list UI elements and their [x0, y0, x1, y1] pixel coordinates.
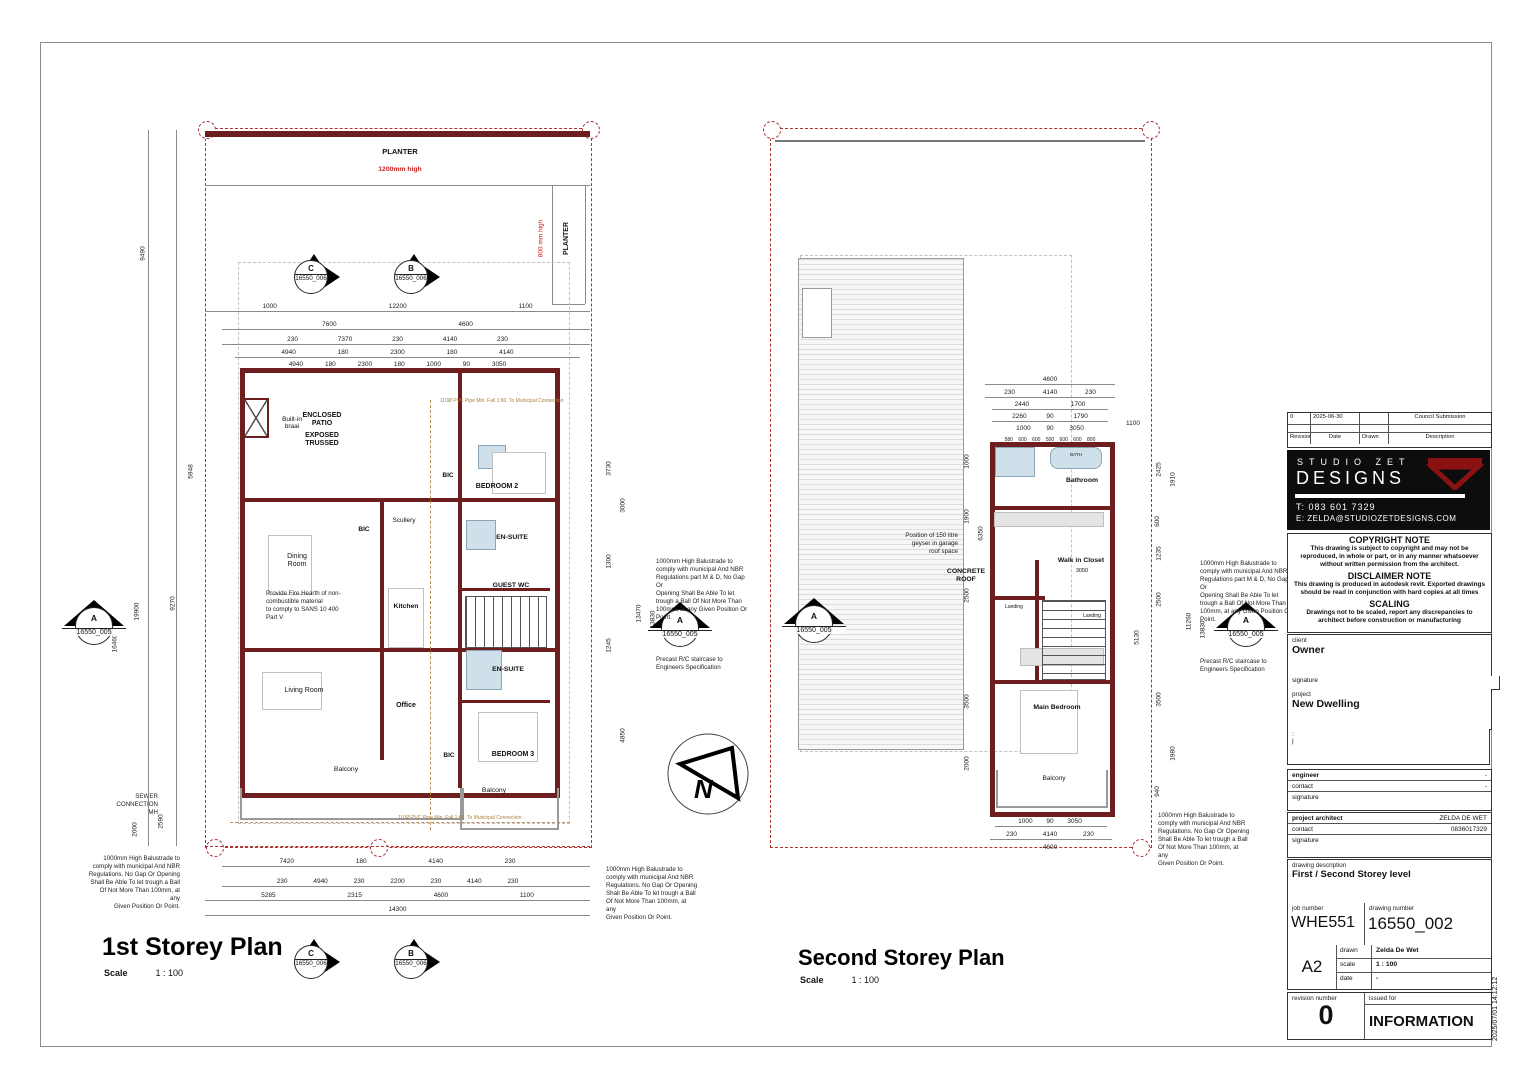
balustrade-note-bottommid: 1000mm High Balustrade to comply with mu… [606, 866, 698, 922]
address-line1: : [1292, 731, 1485, 738]
notes-box: COPYRIGHT NOTE This drawing is subject t… [1287, 533, 1492, 633]
dimension: 2000 [964, 756, 971, 770]
dimension-line [222, 866, 590, 867]
room-label-living: Living Room [274, 687, 334, 695]
dimension: 4850 [620, 728, 627, 742]
architect-value: ZELDA DE WET [1439, 815, 1487, 822]
pvc-pipe-note: 110Ø PVC Pipe Min. Fall 1:60. To Municip… [440, 398, 564, 405]
section-marker-a-left: A 16550_005 [62, 600, 126, 646]
dimension: 2425 [1156, 462, 1163, 476]
room-label-scullery: Scullery [384, 517, 424, 524]
dimension: 3000 [620, 498, 627, 512]
dimension: 19900 [134, 602, 141, 620]
job-label: job number [1288, 903, 1364, 912]
dimension-row: 230 7370 230 4140 230 [205, 336, 590, 343]
dimension-row: 2440 1700 [985, 401, 1115, 408]
drawn-label: drawn [1337, 945, 1371, 959]
dimension: 1980 [1170, 746, 1177, 760]
dimension-row: 2260 90 1790 [985, 413, 1115, 420]
balustrade-note-bottomleft: 1000mm High Balustrade to comply with mu… [88, 855, 180, 911]
bath-fixture [1050, 447, 1102, 469]
room-label-guestwc: GUEST WC [486, 582, 536, 590]
client-signature: signature [1287, 676, 1500, 690]
pvc-pipe-line [230, 822, 570, 823]
dimension-line [205, 311, 590, 312]
logo-tel: T: 083 601 7329 [1296, 502, 1376, 512]
dimension-row: 14300 [205, 906, 590, 913]
room-label-bathroom: Bathroom [1052, 477, 1112, 485]
section-ref: 16550_006 [295, 275, 327, 282]
section-ref: 16550_006 [395, 275, 427, 282]
job-number-box: job number WHE551 drawing number 16550_0… [1287, 903, 1492, 946]
dimension: 3500 [1156, 692, 1163, 706]
engineer-label: engineer [1292, 772, 1319, 779]
dimension: 2000 [132, 822, 139, 836]
landing-label: Landing [998, 605, 1030, 611]
dimension-row: 7600 4600 [205, 321, 590, 328]
dimension-line [985, 397, 1115, 398]
room-label-bic: BIC [436, 472, 460, 479]
project-label: project [1288, 689, 1491, 698]
scale-value: 1 : 100 [156, 968, 184, 978]
svg-text:N: N [694, 774, 714, 804]
scale-value: 1 : 100 [852, 975, 880, 985]
section-letter: A [62, 613, 126, 623]
desc-cell: Council Submission [1389, 413, 1491, 424]
dimension: 600 [1154, 516, 1161, 527]
dimension: 3500 [964, 694, 971, 708]
room-label-ensuite1: EN-SUITE [488, 534, 536, 542]
sheet-info-box: A2 drawn scale date Zelda De Wet 1 : 100… [1287, 945, 1492, 990]
dimension: 1245 [606, 638, 613, 652]
bath-label: BATH [1058, 452, 1094, 457]
room-label-kitchen: Kitchen [386, 603, 426, 611]
disclaimer-head: DISCLAIMER NOTE [1288, 571, 1491, 581]
dimension-row: 230 4940 230 2200 230 4140 230 [205, 878, 590, 885]
room-label-balcony: Balcony [1030, 775, 1078, 782]
dimension: 1910 [1170, 472, 1177, 486]
dimension: 9490 [140, 246, 147, 260]
room-label-ensuite2: EN-SUITE [484, 666, 532, 674]
section-letter: C [295, 264, 327, 275]
dimension-row: 4600 [985, 844, 1115, 851]
desc-value: First / Second Storey level [1288, 869, 1491, 880]
dimension: 2500 [964, 588, 971, 602]
scaling-head: SCALING [1288, 599, 1491, 609]
revision-issued-box: revision number 0 issued for INFORMATION [1287, 992, 1492, 1040]
dimension-line [205, 915, 590, 916]
kitchen-island [388, 588, 424, 648]
balustrade-note-right: 1000mm High Balustrade to comply with mu… [656, 558, 748, 623]
drawn-value: Zelda De Wet [1372, 945, 1491, 959]
dimension: 1235 [1156, 546, 1163, 560]
boundary-bottom-line [205, 846, 590, 847]
client-label: client [1288, 635, 1491, 644]
dimension-row: 230 4140 230 [985, 389, 1115, 396]
boundary-peg-icon [1142, 121, 1160, 139]
boundary-peg-icon [370, 839, 388, 857]
dimension: 13470 [636, 604, 643, 622]
room-label-patio2: EXPOSED TRUSSED [292, 432, 352, 448]
sheet-size: A2 [1302, 957, 1323, 977]
sheet-values: Zelda De Wet 1 : 100 - [1372, 945, 1491, 989]
print-timestamp: 2025/07/01 14:12:12 [1492, 977, 1499, 1041]
plan1-wall [462, 700, 550, 703]
dimension-row: 4940 180 2300 180 4140 [205, 349, 590, 356]
architect-contact-label: contact [1292, 826, 1313, 833]
planter-line [205, 185, 590, 186]
pvc-pipe-line [430, 400, 431, 830]
plan1-wall [240, 648, 555, 652]
rev-header: Revision [1288, 433, 1311, 444]
logo-mark-icon [1426, 456, 1484, 490]
dimension-row: 4600 [985, 376, 1115, 383]
room-label-bic: BIC [352, 526, 376, 533]
wic-dim: 3050 [1062, 568, 1102, 574]
boundary-peg-icon [1132, 839, 1150, 857]
sewer-note: SEWER CONNECTION MH [98, 793, 158, 817]
pvc-pipe-note: 110Ø PVC Pipe Min. Fall 1:60. To Municip… [398, 815, 522, 822]
roof-skylight [802, 288, 832, 338]
precast-note-right2: Precast R/C staircase to Engineers Speci… [1200, 658, 1292, 674]
engineer-signature: signature [1292, 794, 1319, 801]
dimension-row: 1000 90 3050 [985, 818, 1115, 825]
date-cell: 2025-06-30 [1311, 413, 1360, 424]
room-label-wic: Walk in Closet [1046, 557, 1116, 565]
dimension: 5948 [188, 464, 195, 478]
dimension-line [992, 409, 1108, 410]
staircase [465, 596, 547, 648]
logo-divider [1295, 494, 1465, 498]
section-marker-a-left2: A 16550_005 [782, 598, 846, 644]
planter-label: PLANTER [350, 148, 450, 157]
section-letter: B [395, 949, 427, 960]
architect-signature: signature [1292, 837, 1319, 844]
section-ref: 16550_005 [62, 628, 126, 636]
planter-wall [205, 131, 590, 137]
balustrade-note-bottom2: 1000mm High Balustrade to comply with mu… [1158, 812, 1250, 868]
engineer-box: engineer- contact- signature [1287, 769, 1492, 811]
rev-num-value: 0 [1288, 1002, 1364, 1029]
dimension: 2590 [158, 814, 165, 828]
revision-cell: revision number 0 [1288, 993, 1365, 1039]
dimension-row: 4940 180 2300 180 1000 90 3050 [205, 361, 590, 368]
copyright-head: COPYRIGHT NOTE [1288, 535, 1491, 545]
issued-cell: issued for INFORMATION [1365, 993, 1491, 1039]
dimension-line [995, 826, 1107, 827]
dimension: 1000 [964, 454, 971, 468]
plan2-wall [990, 506, 1110, 510]
section-ref: 16550_005 [648, 630, 712, 638]
section-ref: 16550_005 [782, 626, 846, 634]
issued-label: issued for [1365, 993, 1491, 1005]
engineer-contact-label: contact [1292, 783, 1313, 790]
dwg-value: 16550_002 [1365, 912, 1491, 936]
section-marker-b-bottom: B16550_006 [394, 945, 440, 979]
client-box: client Owner [1287, 634, 1492, 678]
drawing-number-cell: drawing number 16550_002 [1365, 903, 1491, 945]
balustrade-note-right2: 1000mm High Balustrade to comply with mu… [1200, 560, 1292, 625]
dimension-row: 230 4140 230 [985, 831, 1115, 838]
scale-value: 1 : 100 [1372, 959, 1491, 973]
shower-fixture [995, 447, 1035, 477]
plan2-wall [990, 680, 1110, 684]
precast-note-right: Precast R/C staircase to Engineers Speci… [656, 656, 748, 672]
architect-contact: 0836017329 [1451, 826, 1487, 833]
section-ref: 16550_006 [395, 960, 427, 967]
dimension-line [205, 900, 590, 901]
section-marker-c-top: C16550_006 [294, 260, 340, 294]
plan2-title: Second Storey Plan [798, 945, 1005, 971]
section-marker-c-bottom: C16550_006 [294, 945, 340, 979]
dimension-line [992, 421, 1108, 422]
scale-label: Scale [104, 968, 128, 978]
section-ref: 16550_005 [1214, 630, 1278, 638]
room-label-bedroom3: BEDROOM 3 [483, 751, 543, 759]
dwg-label: drawing number [1365, 903, 1491, 912]
dimension: 3730 [606, 461, 613, 475]
wardrobe-band [994, 512, 1104, 527]
dimension: 11260 [1185, 613, 1192, 631]
dimension: 1100 [1118, 420, 1148, 427]
room-label-bic: BIC [437, 752, 461, 759]
job-value: WHE551 [1288, 912, 1364, 934]
scale-label: Scale [800, 975, 824, 985]
drawn-header: Drawn [1360, 433, 1389, 444]
planter-side-height-label: 800 mm high [537, 220, 544, 258]
rev-cell: 0 [1288, 413, 1311, 424]
address-line2: | [1292, 738, 1485, 745]
disclaimer-body: This drawing is produced in autodesk rev… [1288, 581, 1491, 597]
dimension: 5130 [1134, 630, 1141, 644]
dimension-line [148, 130, 149, 846]
plan2-scale: Scale1 : 100 [800, 975, 879, 985]
plan1-wall [458, 368, 462, 788]
dimension-line [222, 886, 590, 887]
planter-side-label: PLANTER [563, 222, 570, 255]
dimension-line [222, 329, 590, 330]
room-label-office: Office [388, 702, 424, 710]
boundary-peg-icon [206, 839, 224, 857]
dimension: 2500 [1156, 592, 1163, 606]
room-label-balcony-right: Balcony [470, 787, 518, 795]
logo-line1: STUDIO ZET [1297, 457, 1411, 467]
date-value: - [1372, 973, 1491, 986]
fire-hearth-note: Provide Fire Hearth of non- combustible … [266, 590, 350, 622]
room-label-balcony-left: Balcony [322, 766, 370, 774]
scale-label: scale [1337, 959, 1371, 973]
drawing-description-box: drawing description First / Second Store… [1287, 859, 1492, 905]
section-letter: C [295, 949, 327, 960]
dimension: 940 [1154, 786, 1161, 797]
sheet-keys: drawn scale date [1337, 945, 1372, 989]
braai-icon [243, 398, 269, 438]
dimension-row: 5285 2315 4600 1100 [205, 892, 590, 899]
job-cell: job number WHE551 [1288, 903, 1365, 945]
sheet-size-cell: A2 [1288, 945, 1337, 989]
planter-height-label: 1200mm high [350, 166, 450, 174]
dimension-line [176, 130, 177, 846]
plan1-scale: Scale1 : 100 [104, 968, 183, 978]
dimension: 1300 [606, 554, 613, 568]
staircase [1042, 600, 1106, 680]
revision-table: 0 2025-06-30 Council Submission Revision… [1287, 412, 1492, 448]
dimension-row: 1000 12200 1100 [205, 303, 590, 310]
room-label-bedroom2: BEDROOM 2 [467, 483, 527, 491]
room-label-dining: Dining Room [275, 553, 319, 569]
desc-label: drawing description [1288, 860, 1491, 869]
dimension-row: 1000 90 3050 [985, 425, 1115, 432]
engineer-value: - [1485, 772, 1487, 779]
drawn-cell [1360, 413, 1389, 424]
engineer-contact: - [1485, 783, 1487, 790]
plan2-top-wall-line [775, 140, 1145, 142]
copyright-body: This drawing is subject to copyright and… [1288, 545, 1491, 569]
studio-zet-logo: STUDIO ZET DESIGNS T: 083 601 7329 E: ZE… [1287, 450, 1490, 530]
scaling-body: Drawings not to be scaled, report any di… [1288, 609, 1491, 625]
dimension: 1900 [964, 509, 971, 523]
architect-label: project architect [1292, 815, 1343, 822]
planter-side-line [585, 186, 586, 304]
dimension-line [222, 344, 590, 345]
architect-box: project architectZELDA DE WET contact083… [1287, 812, 1492, 858]
dimension-row: 7420 180 4140 230 [205, 858, 590, 865]
dimension-line [985, 384, 1115, 385]
landing-label: Landing [1076, 614, 1108, 620]
client-value: Owner [1288, 644, 1491, 656]
dimension-line [235, 357, 580, 358]
room-label-mainbedroom: Main Bedroom [1022, 704, 1092, 712]
issued-value: INFORMATION [1365, 1005, 1491, 1038]
project-value: New Dwelling [1288, 698, 1491, 710]
geyser-note: Position of 150 litre geyser in garage r… [858, 532, 958, 556]
room-label-patio: ENCLOSED PATIO [292, 412, 352, 428]
logo-line2: DESIGNS [1296, 468, 1405, 489]
desc-header: Description [1389, 433, 1491, 444]
concrete-roof-label: CONCRETE ROOF [938, 568, 994, 584]
plan1-wall [240, 498, 555, 502]
date-header: Date [1311, 433, 1360, 444]
project-box: project New Dwelling [1287, 689, 1492, 730]
section-ref: 16550_006 [295, 960, 327, 967]
main-bed [1020, 690, 1078, 754]
section-marker-b-top: B16550_006 [394, 260, 440, 294]
logo-email: E: ZELDA@STUDIOZETDESIGNS.COM [1296, 514, 1456, 523]
north-arrow-icon: N [660, 726, 756, 822]
boundary-peg-icon [763, 121, 781, 139]
dimension: 6350 [978, 526, 985, 540]
project-address-box: : | [1287, 729, 1490, 765]
date-label: date [1337, 973, 1371, 986]
section-letter: B [395, 264, 427, 275]
dimension-line [990, 839, 1112, 840]
section-letter: A [782, 611, 846, 621]
plan1-wall [380, 500, 384, 760]
plan1-title: 1st Storey Plan [102, 933, 283, 962]
